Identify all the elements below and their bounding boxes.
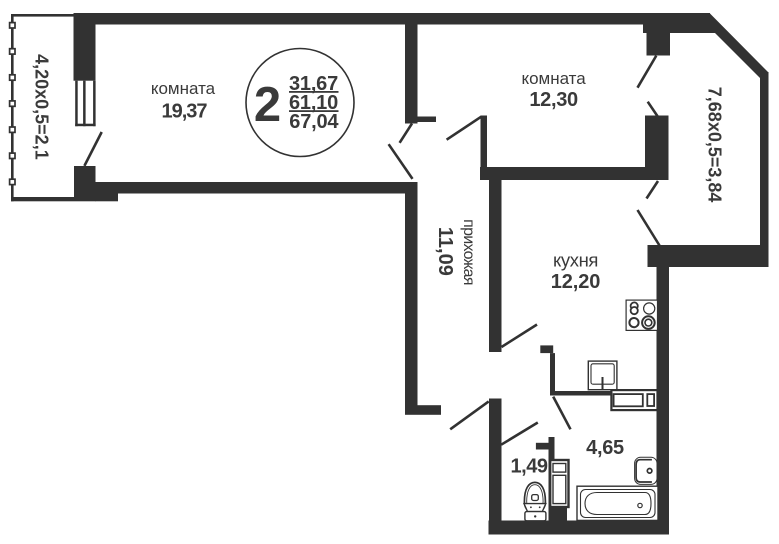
svg-text:1,49: 1,49: [511, 456, 548, 478]
svg-text:2: 2: [254, 78, 281, 132]
svg-text:4,20х0,5=2,1: 4,20х0,5=2,1: [32, 54, 52, 160]
svg-text:кухня: кухня: [553, 250, 598, 271]
svg-text:комната: комната: [521, 69, 586, 88]
svg-text:4,65: 4,65: [586, 437, 624, 459]
svg-text:11,09: 11,09: [434, 227, 456, 276]
svg-text:7,68х0,5=3,84: 7,68х0,5=3,84: [704, 87, 724, 203]
svg-text:прихожая: прихожая: [460, 219, 477, 285]
svg-text:12,20: 12,20: [551, 271, 601, 293]
svg-text:19,37: 19,37: [161, 100, 207, 122]
svg-text:комната: комната: [151, 79, 216, 98]
svg-text:67,04: 67,04: [289, 111, 339, 133]
svg-text:12,30: 12,30: [529, 89, 578, 111]
